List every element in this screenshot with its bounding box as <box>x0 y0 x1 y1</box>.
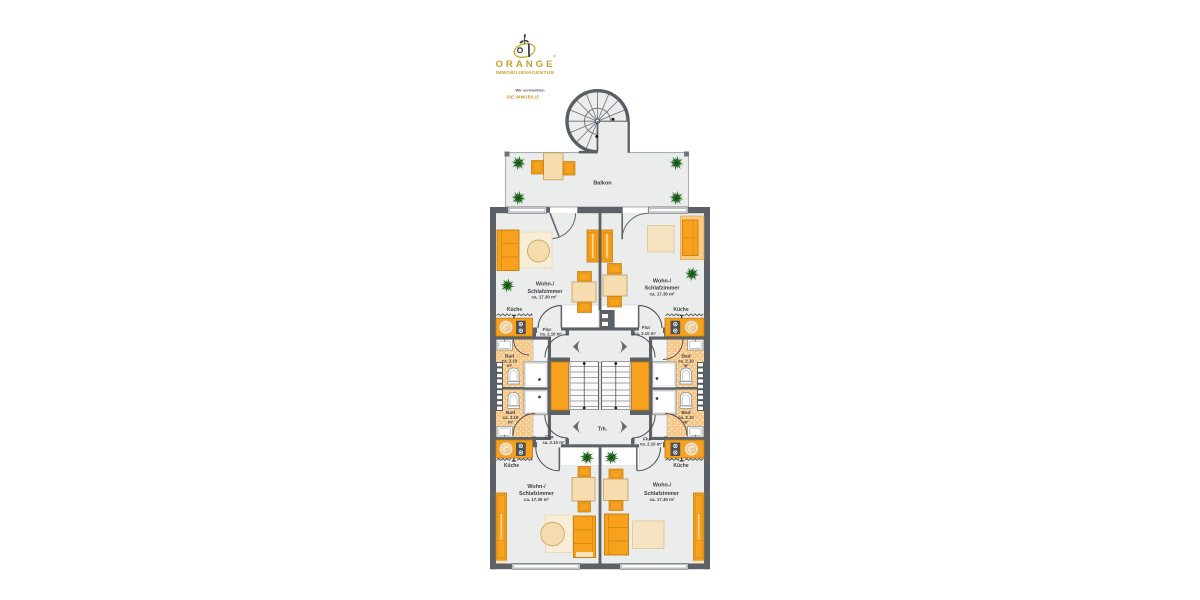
svg-text:ca. 17.30 m²: ca. 17.30 m² <box>532 295 557 300</box>
svg-text:ca. 2.10 m²: ca. 2.10 m² <box>543 440 566 445</box>
svg-text:Wohn-/: Wohn-/ <box>653 279 672 285</box>
svg-text:Küche: Küche <box>673 307 689 313</box>
svg-text:Wir vermarkten: Wir vermarkten <box>515 88 545 93</box>
svg-text:IMMOBILIENAGENTUR: IMMOBILIENAGENTUR <box>496 70 555 76</box>
svg-text:Küche: Küche <box>504 463 520 469</box>
svg-text:Flur: Flur <box>642 325 651 330</box>
svg-text:Wohn-/: Wohn-/ <box>653 483 672 489</box>
svg-text:ca. 17.30 m²: ca. 17.30 m² <box>650 291 675 296</box>
svg-text:ca. 2.10 m²: ca. 2.10 m² <box>640 442 663 447</box>
svg-text:Küche: Küche <box>507 307 523 313</box>
svg-text:ca. 17.30 m²: ca. 17.30 m² <box>650 497 675 502</box>
svg-text:DIE IMMOBILIE: DIE IMMOBILIE <box>507 94 540 99</box>
svg-text:®: ® <box>553 54 556 59</box>
svg-text:Wohn-/: Wohn-/ <box>527 484 546 490</box>
svg-text:m²: m² <box>508 420 514 425</box>
svg-text:Trh.: Trh. <box>598 427 608 433</box>
svg-text:Küche: Küche <box>673 463 689 469</box>
svg-text:Wohn-/: Wohn-/ <box>536 281 555 287</box>
svg-text:ca. 17.30 m²: ca. 17.30 m² <box>524 497 549 502</box>
svg-text:ca. 2.10 m²: ca. 2.10 m² <box>540 332 563 337</box>
svg-text:ca. 2.10 m²: ca. 2.10 m² <box>634 331 657 336</box>
svg-text:Balkon: Balkon <box>593 180 612 186</box>
svg-text:m²: m² <box>683 363 689 368</box>
svg-text:ORANGE: ORANGE <box>495 59 555 70</box>
svg-text:m²: m² <box>507 363 513 368</box>
svg-text:m²: m² <box>683 420 689 425</box>
